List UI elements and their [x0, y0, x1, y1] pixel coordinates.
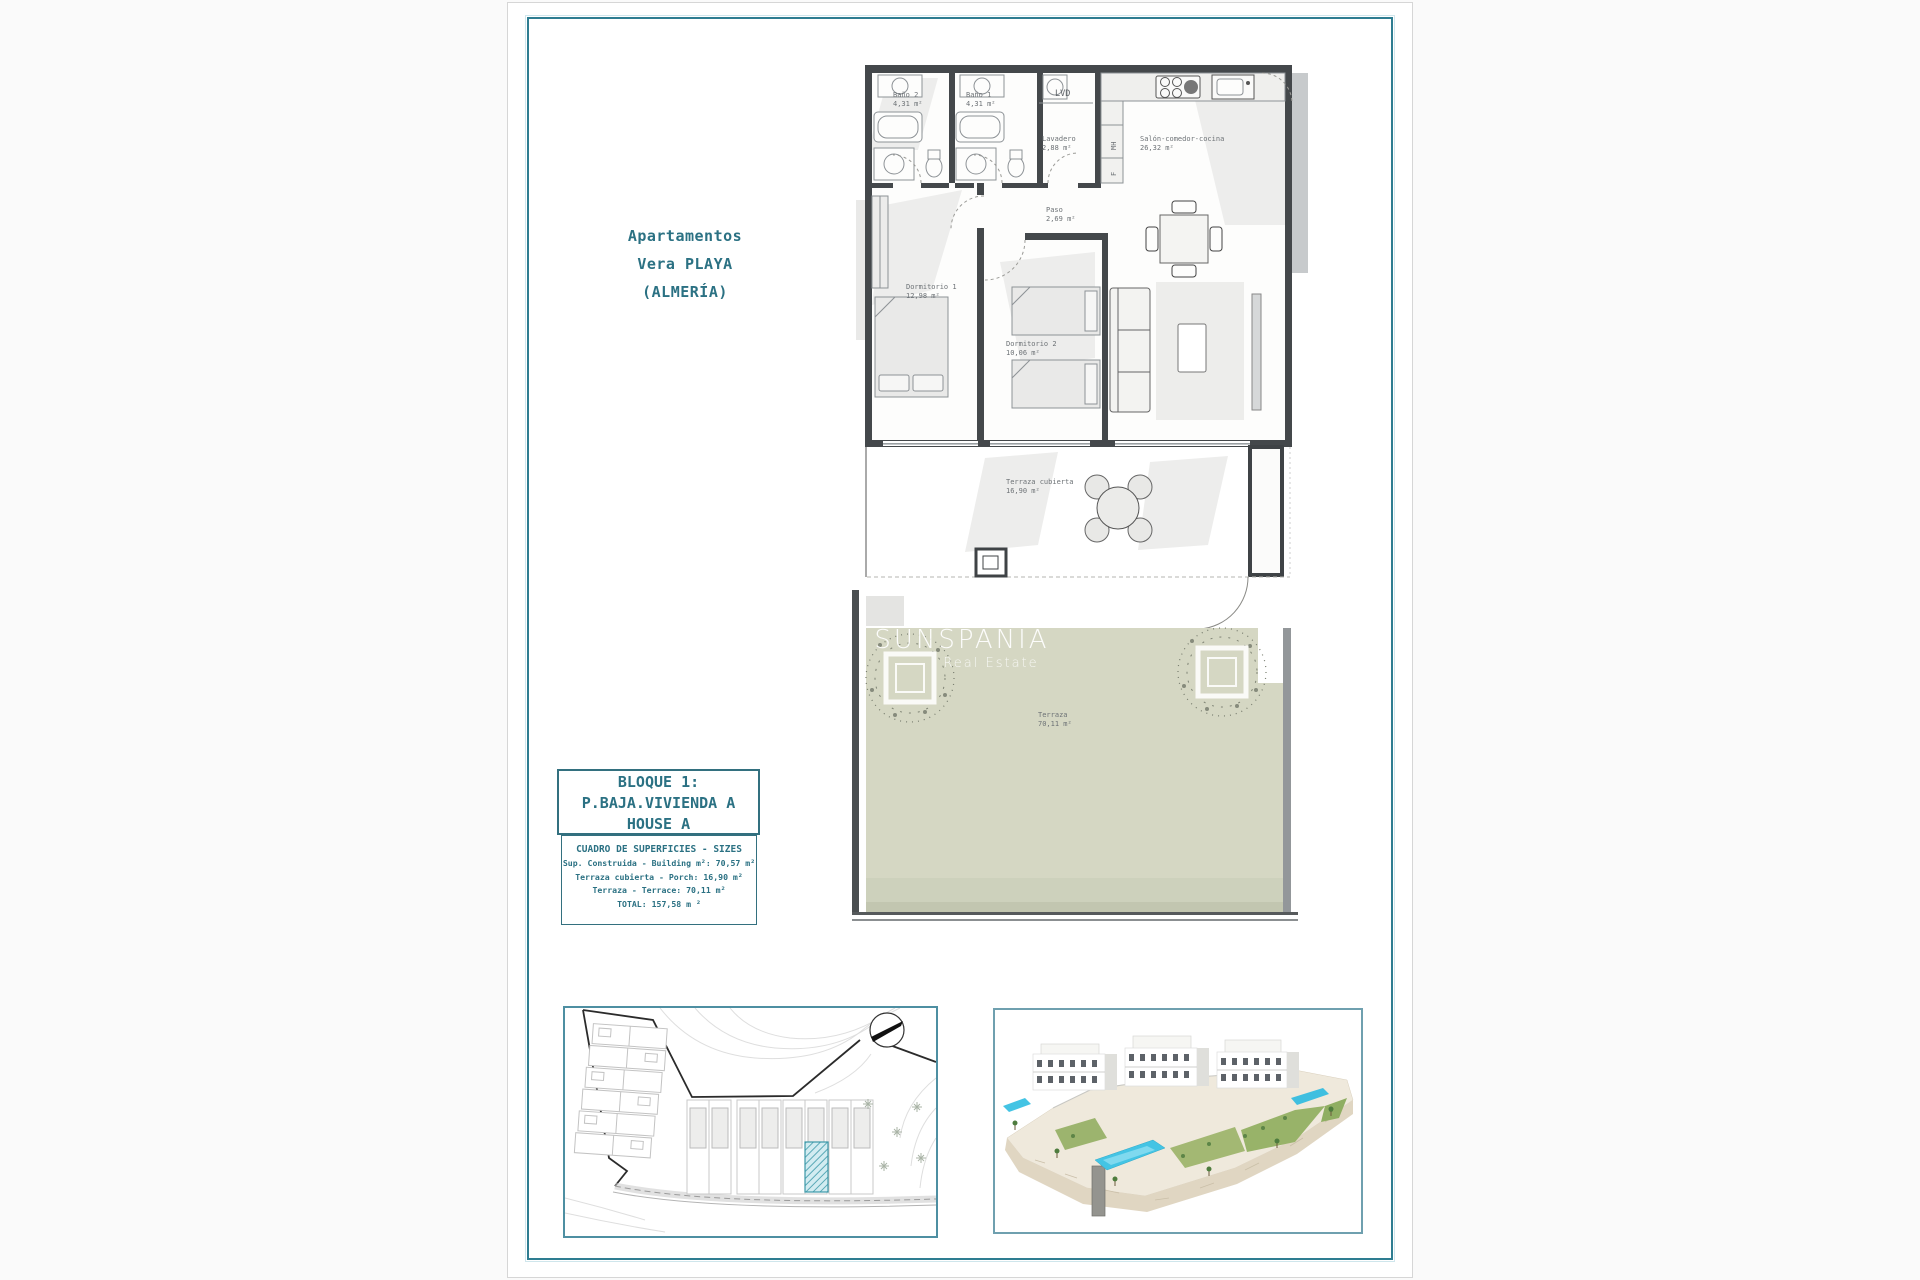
label-tall-unit: MH [1110, 142, 1118, 150]
small-planter [976, 549, 1006, 576]
building-cluster-middle [1125, 1036, 1209, 1086]
room-label-lvd: LVD [1055, 89, 1070, 99]
svg-text:4,31 m²: 4,31 m² [893, 100, 923, 108]
project-title-line3: (ALMERÍA) [572, 278, 798, 306]
covered-terrace [865, 447, 1290, 629]
terrace-lawn [866, 628, 1285, 878]
document-canvas: { "document": { "project_title_lines": [… [0, 0, 1920, 1280]
site-plan [565, 1008, 936, 1236]
dining-chair [1210, 227, 1222, 251]
sizes-row-porch: Terraza cubierta - Porch: 16,90 m² [562, 871, 756, 885]
room-label-bano2: Baño 2 [893, 91, 918, 99]
bath2-toilet [926, 157, 942, 177]
svg-text:10,06 m²: 10,06 m² [1006, 349, 1040, 357]
dining-chair [1172, 265, 1196, 277]
pool-left [1003, 1098, 1031, 1112]
tv-unit [1252, 294, 1261, 410]
dining-table [1160, 215, 1208, 263]
unit-info-box: BLOQUE 1: P.BAJA.VIVIENDA A HOUSE A [557, 769, 760, 835]
unit-info-line3: HOUSE A [559, 814, 758, 835]
floor-plan: Baño 2 4,31 m² Baño 1 4,31 m² LVD Lavade… [845, 55, 1315, 940]
unit-info-line2: P.BAJA.VIVIENDA A [559, 793, 758, 814]
project-title-line1: Apartamentos [572, 222, 798, 250]
svg-text:26,32 m²: 26,32 m² [1140, 144, 1174, 152]
room-label-terraza-cubierta: Terraza cubierta [1006, 478, 1073, 486]
svg-text:70,11 m²: 70,11 m² [1038, 720, 1072, 728]
room-label-bano1: Baño 1 [966, 91, 991, 99]
unit-info-line1: BLOQUE 1: [559, 772, 758, 793]
sizes-row-building: Sup. Construida - Building m²: 70,57 m² [562, 857, 756, 871]
building-cluster-right [1217, 1040, 1299, 1088]
terrace-fence [852, 912, 1298, 915]
bath1-toilet [1008, 157, 1024, 177]
housing-row-central [687, 1100, 873, 1194]
dining-chair [1172, 201, 1196, 213]
room-label-dorm1: Dormitorio 1 [906, 283, 957, 291]
sizes-header: CUADRO DE SUPERFICIES - SIZES [562, 843, 756, 857]
stair-tower [1092, 1166, 1105, 1216]
north-symbol [870, 1013, 904, 1047]
room-label-paso: Paso [1046, 206, 1063, 214]
highlighted-unit [805, 1142, 828, 1192]
glazed-openings [883, 441, 1250, 446]
room-label-terraza: Terraza [1038, 711, 1068, 719]
room-label-salon: Salón-comedor-cocina [1140, 135, 1224, 143]
sizes-row-total: TOTAL: 157,58 m ² [562, 898, 756, 912]
sizes-row-terrace: Terraza - Terrace: 70,11 m² [562, 884, 756, 898]
svg-text:2,88 m²: 2,88 m² [1042, 144, 1072, 152]
terrace-pillar [1250, 447, 1282, 575]
project-title: Apartamentos Vera PLAYA (ALMERÍA) [572, 222, 798, 306]
svg-text:12,98 m²: 12,98 m² [906, 292, 940, 300]
adjacent-wall [1292, 73, 1308, 273]
room-label-lavadero: Lavadero [1042, 135, 1076, 143]
project-title-line2: Vera PLAYA [572, 250, 798, 278]
building-cluster-left [1033, 1044, 1117, 1090]
svg-text:4,31 m²: 4,31 m² [966, 100, 996, 108]
open-terrace [852, 590, 1298, 921]
render-3d-box [993, 1008, 1363, 1234]
room-label-dorm2: Dormitorio 2 [1006, 340, 1057, 348]
label-fridge: F [1110, 172, 1118, 176]
svg-text:16,90 m²: 16,90 m² [1006, 487, 1040, 495]
terrace-table-set [1085, 475, 1152, 542]
sizes-table: CUADRO DE SUPERFICIES - SIZES Sup. Const… [561, 835, 757, 925]
coffee-table [1178, 324, 1206, 372]
site-plan-box [563, 1006, 938, 1238]
render-3d [995, 1010, 1361, 1232]
dining-chair [1146, 227, 1158, 251]
svg-text:2,69 m²: 2,69 m² [1046, 215, 1076, 223]
sofa [1110, 288, 1150, 412]
